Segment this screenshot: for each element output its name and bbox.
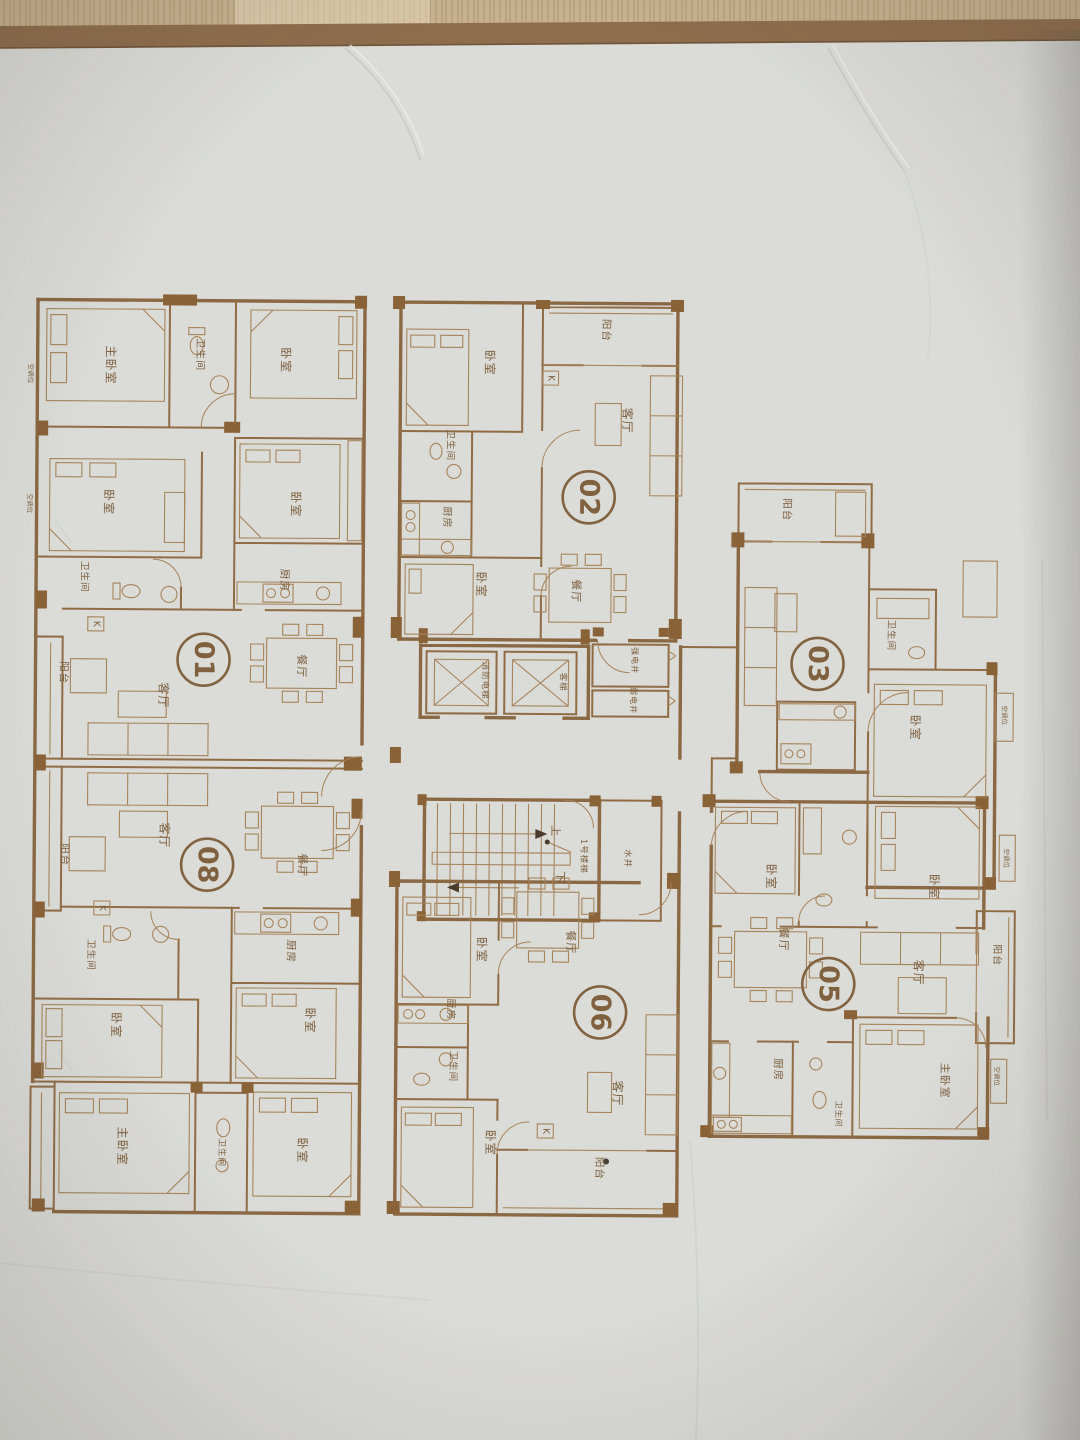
right-edge-shadow — [1020, 30, 1080, 1440]
floorplan-photo: 主卧室卫生间卧室卧室卧室厨房卫生间餐厅客厅阳台卧室阳台卫生间厨房客厅餐厅卧室消防… — [0, 0, 1080, 1440]
vignette — [0, 0, 1080, 1440]
floorplan-svg: 主卧室卫生间卧室卧室卧室厨房卫生间餐厅客厅阳台卧室阳台卫生间厨房客厅餐厅卧室消防… — [0, 0, 1080, 1440]
